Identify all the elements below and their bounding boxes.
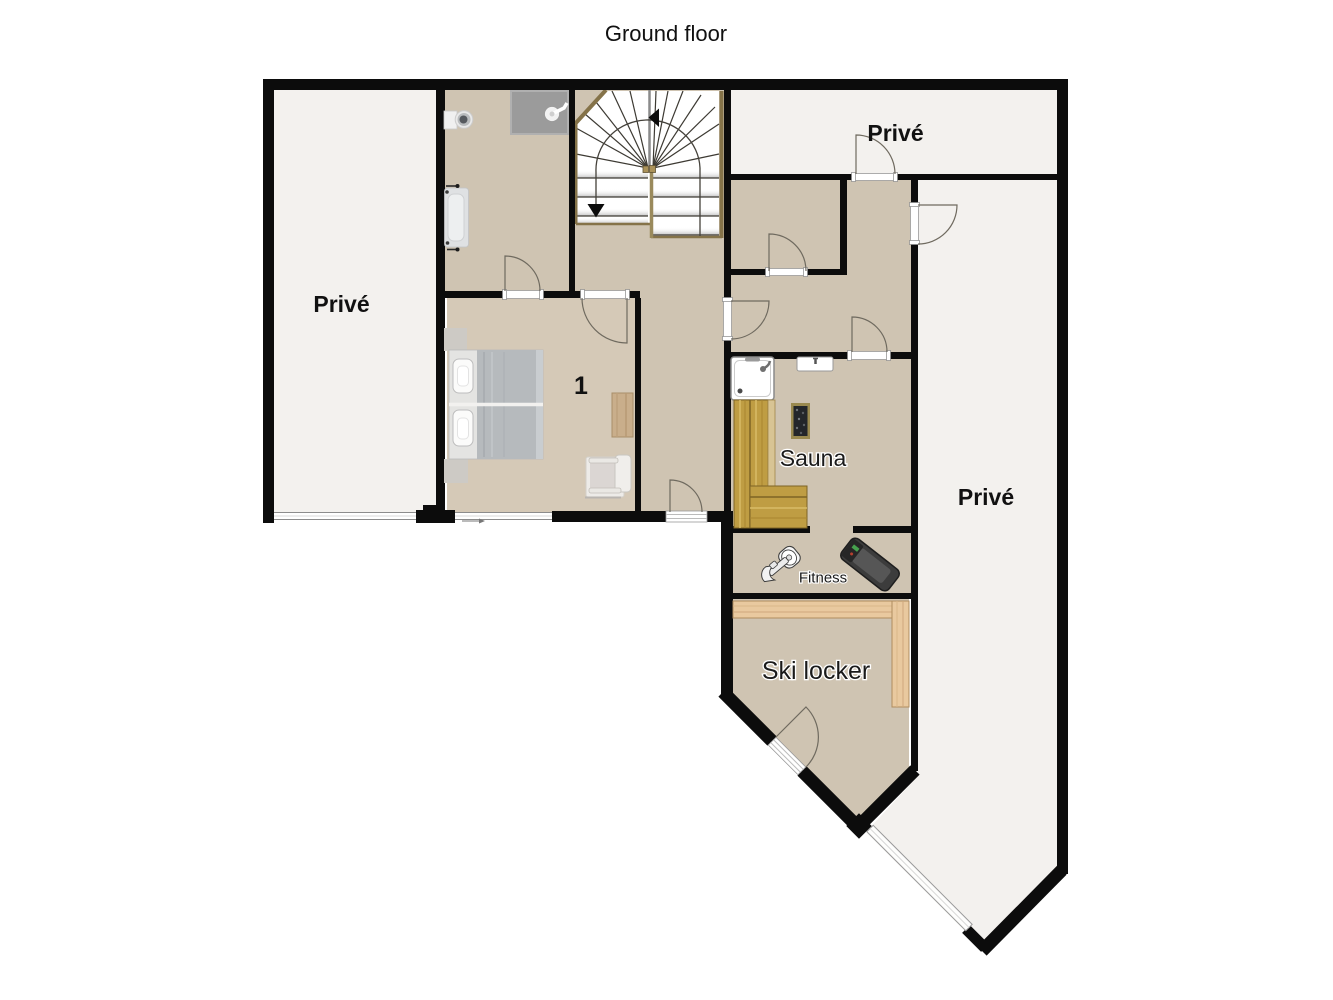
svg-text:Privé: Privé bbox=[867, 120, 923, 146]
svg-text:Privé: Privé bbox=[958, 484, 1014, 510]
svg-text:Privé: Privé bbox=[313, 291, 369, 317]
svg-text:Ski locker: Ski locker bbox=[762, 657, 870, 685]
svg-text:Sauna: Sauna bbox=[780, 445, 847, 471]
svg-text:Ground floor: Ground floor bbox=[605, 21, 727, 46]
svg-text:Fitness: Fitness bbox=[799, 570, 847, 587]
svg-text:1: 1 bbox=[574, 372, 588, 400]
